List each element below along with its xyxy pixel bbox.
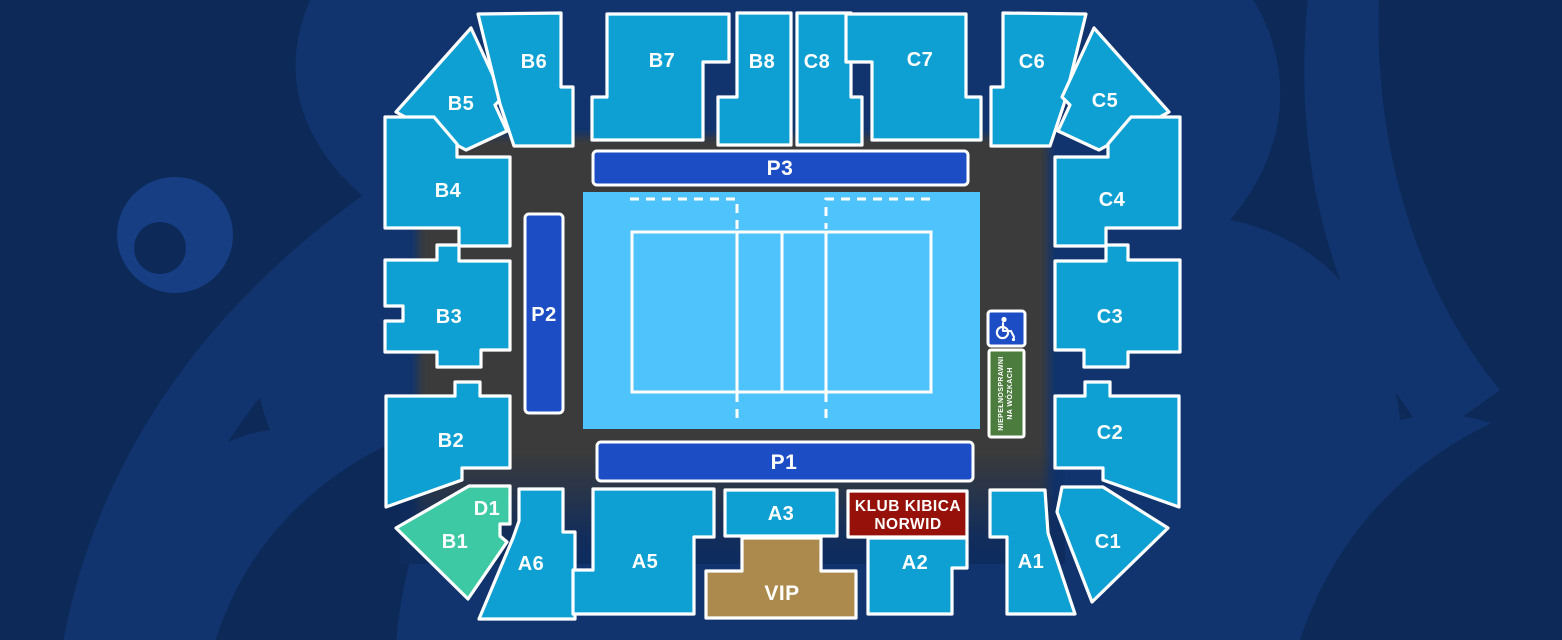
volleyball-court [583,192,980,429]
section-a3[interactable] [725,490,837,536]
section-p3[interactable] [593,151,968,185]
arena-seating-map: P3 P1 P2 NIEPEŁNOSPRAWNI NA WÓZKACH B5 B… [0,0,1562,640]
section-a2[interactable] [868,538,967,614]
section-p2[interactable] [525,214,563,413]
section-c3[interactable] [1055,245,1180,367]
wheelchair-label-box [989,350,1024,437]
watermark-owl-eye-pupil [134,222,186,274]
wheelchair-zone[interactable]: NIEPEŁNOSPRAWNI NA WÓZKACH [988,311,1025,437]
section-b3[interactable] [385,245,510,367]
section-a5[interactable] [573,489,714,614]
section-p1[interactable] [597,442,973,481]
section-klub-kibica[interactable] [848,491,967,537]
